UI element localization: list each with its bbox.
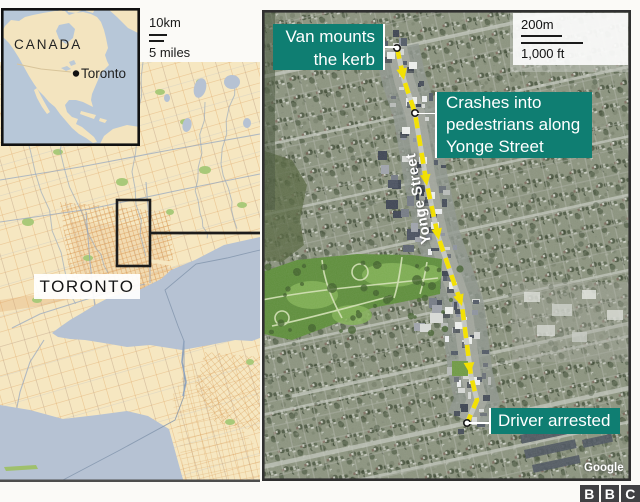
svg-text:Google: Google [584,462,624,474]
svg-text:Toronto: Toronto [81,66,126,81]
svg-text:CANADA: CANADA [14,37,82,52]
